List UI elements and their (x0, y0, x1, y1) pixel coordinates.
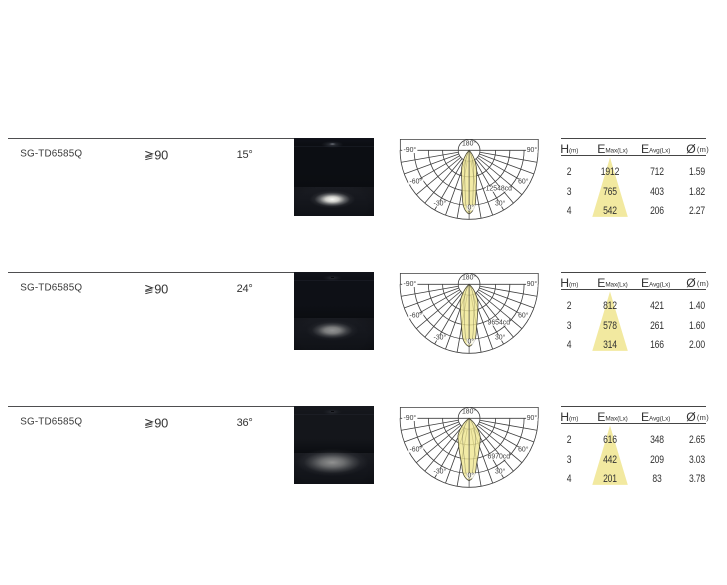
svg-text:-60°: -60° (409, 177, 422, 185)
svg-text:0°: 0° (467, 471, 474, 479)
svg-text:0°: 0° (467, 203, 474, 211)
svg-text:12548cd: 12548cd (485, 185, 512, 192)
svg-text:-90°: -90° (403, 279, 416, 287)
svg-text:-30°: -30° (433, 467, 446, 475)
svg-text:60°: 60° (518, 445, 529, 453)
svg-text:9654cd: 9654cd (487, 319, 510, 326)
svg-text:-30°: -30° (433, 199, 446, 207)
svg-text:-60°: -60° (409, 311, 422, 319)
svg-text:180°: 180° (461, 273, 475, 281)
svg-text:6970cd: 6970cd (487, 453, 510, 460)
svg-text:90°: 90° (526, 413, 537, 421)
svg-text:180°: 180° (461, 407, 475, 415)
svg-text:-60°: -60° (409, 445, 422, 453)
svg-text:-30°: -30° (433, 333, 446, 341)
svg-text:30°: 30° (494, 467, 505, 475)
svg-text:90°: 90° (526, 145, 537, 153)
svg-text:180°: 180° (461, 139, 475, 147)
svg-text:60°: 60° (518, 311, 529, 319)
svg-text:0°: 0° (467, 337, 474, 345)
svg-text:30°: 30° (494, 199, 505, 207)
svg-text:60°: 60° (518, 177, 529, 185)
svg-text:-90°: -90° (403, 145, 416, 153)
svg-text:-90°: -90° (403, 413, 416, 421)
svg-text:90°: 90° (526, 279, 537, 287)
svg-text:30°: 30° (494, 333, 505, 341)
